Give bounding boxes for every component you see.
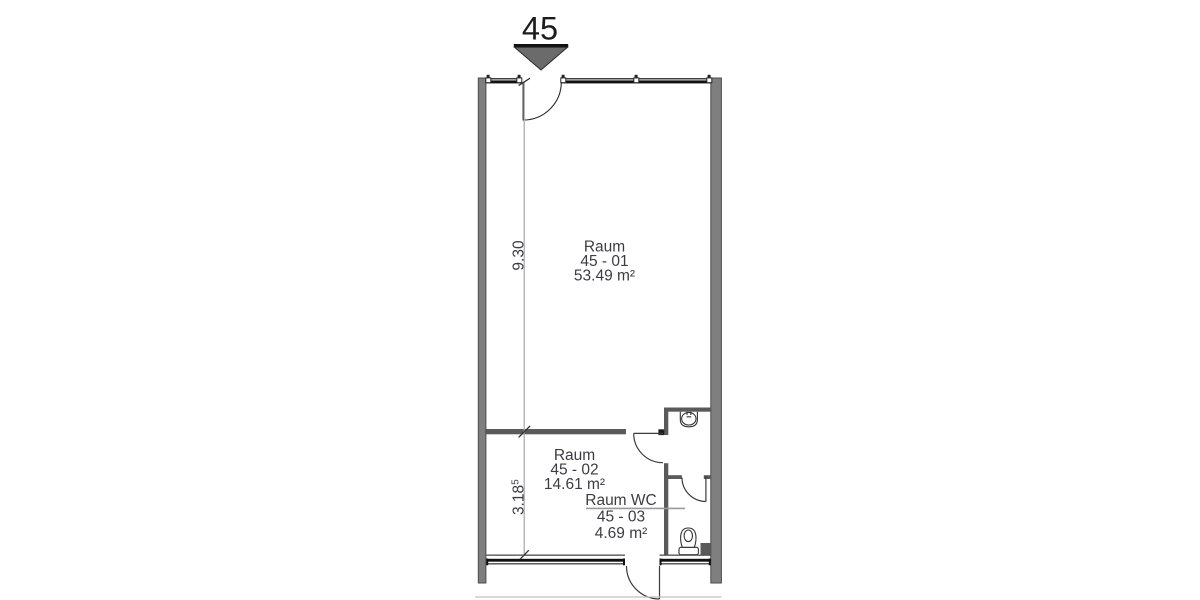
svg-text:14.61 m²: 14.61 m² bbox=[544, 476, 605, 493]
svg-text:53.49 m²: 53.49 m² bbox=[574, 268, 635, 285]
svg-text:4.69 m²: 4.69 m² bbox=[595, 525, 648, 542]
svg-text:9.30: 9.30 bbox=[511, 240, 528, 271]
svg-text:45 - 03: 45 - 03 bbox=[597, 509, 645, 526]
svg-text:45: 45 bbox=[522, 11, 558, 47]
svg-text:3.185: 3.185 bbox=[511, 479, 528, 515]
svg-text:Raum WC: Raum WC bbox=[585, 492, 656, 509]
